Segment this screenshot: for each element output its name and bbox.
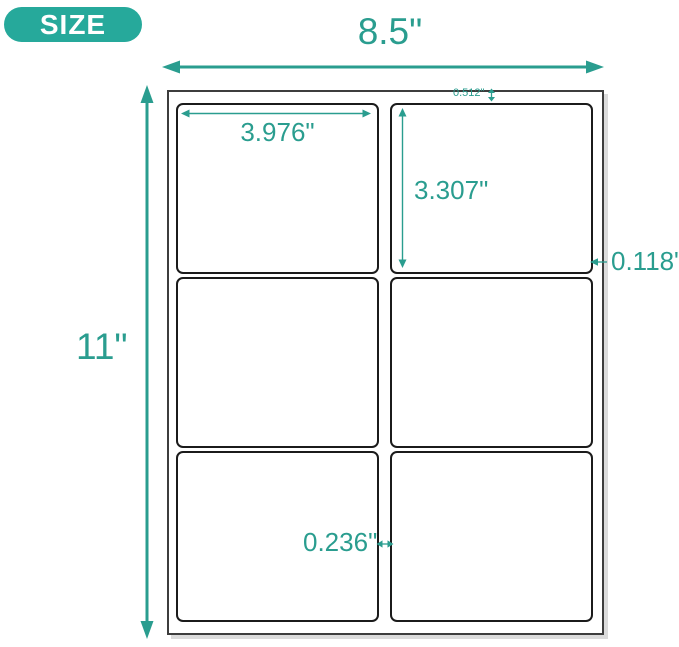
label-cell	[390, 277, 593, 448]
sheet-height-label: 11"	[76, 326, 128, 368]
label-cell	[390, 451, 593, 622]
label-cell: 3.976"	[176, 103, 379, 274]
label-cell	[176, 277, 379, 448]
label-sheet: 3.976" 3.307"	[167, 90, 604, 635]
label-height-arrow-icon	[397, 107, 408, 269]
right-margin-arrow-icon	[589, 257, 608, 267]
sheet-width-label: 8.5"	[340, 11, 440, 53]
label-size-diagram: SIZE 8.5" 11" 3.976"	[0, 0, 679, 647]
top-margin-arrow-icon	[487, 88, 496, 102]
sheet-height-arrow-icon	[139, 84, 155, 640]
label-width-label: 3.976"	[178, 117, 377, 148]
top-margin-label: 0.512"	[453, 87, 484, 99]
size-badge: SIZE	[4, 7, 142, 42]
label-height-label: 3.307"	[414, 175, 488, 206]
label-cell: 3.307"	[390, 103, 593, 274]
column-gap-arrow-icon	[376, 539, 394, 549]
column-gap-label: 0.236"	[303, 527, 377, 558]
sheet-width-arrow-icon	[161, 59, 605, 75]
right-margin-label: 0.118"	[611, 246, 679, 277]
